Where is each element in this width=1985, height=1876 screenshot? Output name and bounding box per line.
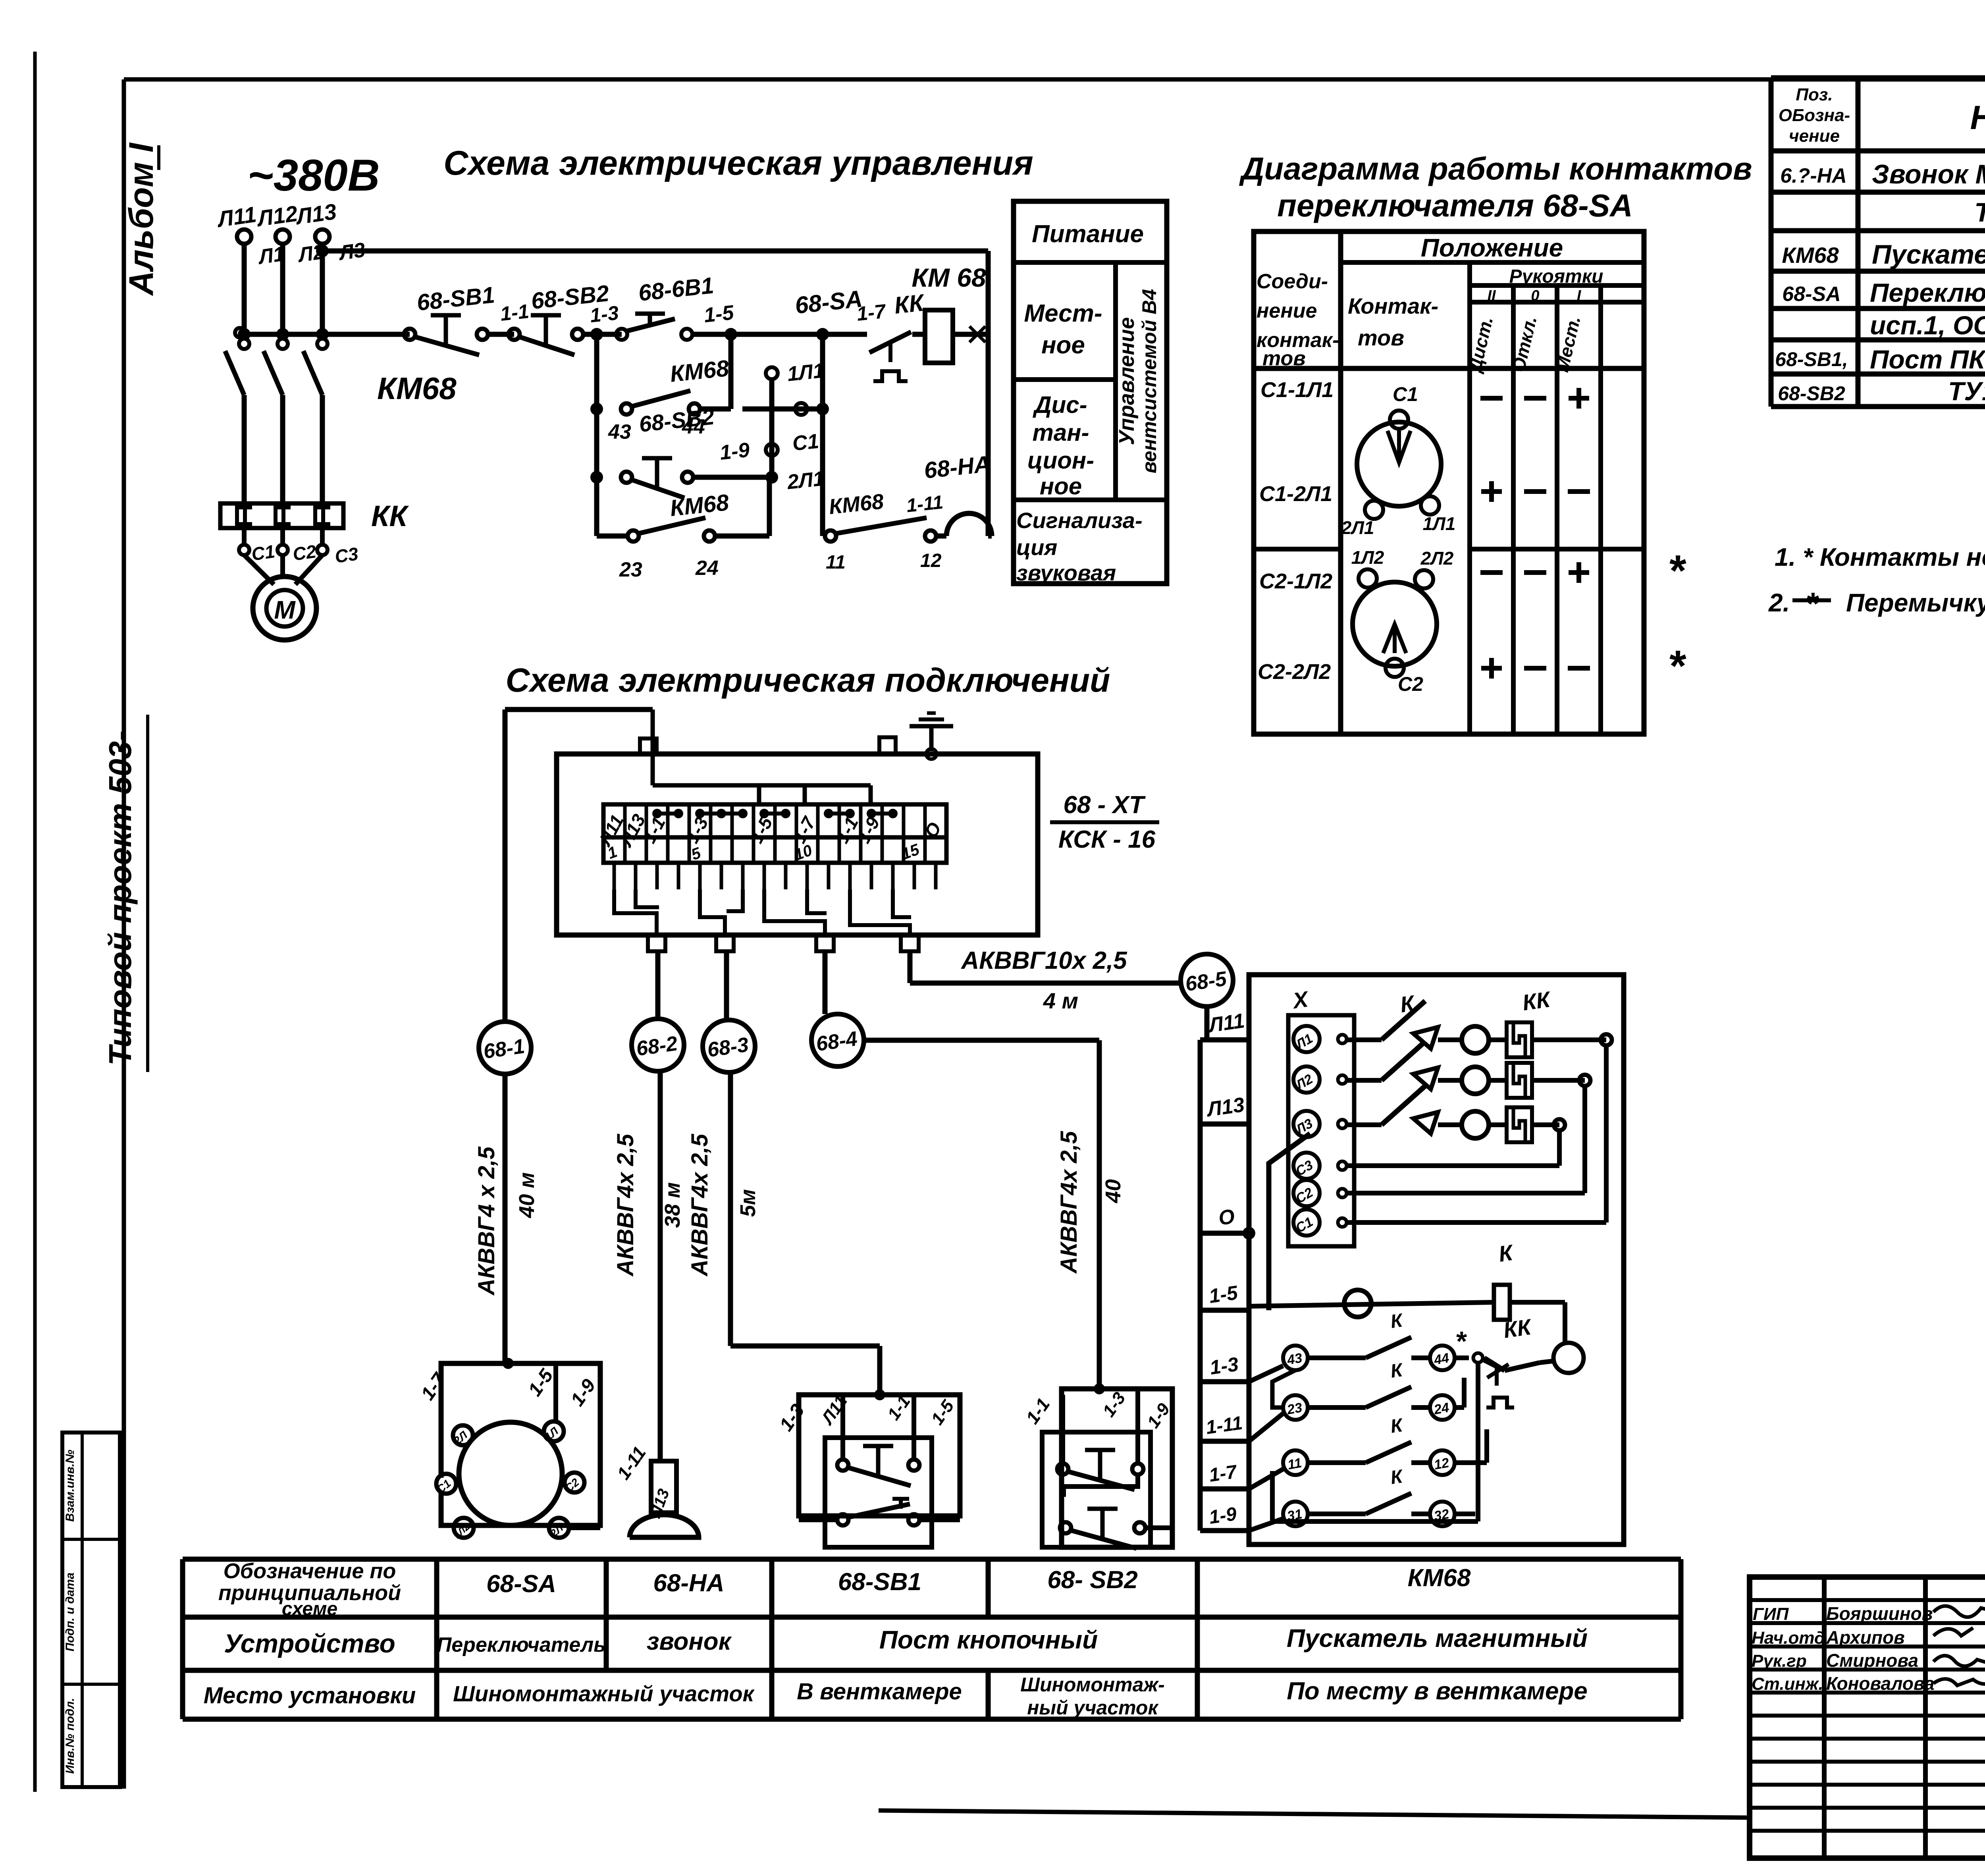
svg-text:АКВВГ10х 2,5: АКВВГ10х 2,5 bbox=[960, 947, 1127, 974]
svg-text:1-11: 1-11 bbox=[1204, 1413, 1244, 1438]
svg-text:12: 12 bbox=[920, 550, 942, 571]
svg-text:68-SB1: 68-SB1 bbox=[416, 282, 496, 316]
svg-text:К: К bbox=[1389, 1310, 1405, 1332]
svg-text:Пост кнопочный: Пост кнопочный bbox=[879, 1625, 1098, 1654]
svg-text:68-НА: 68-НА bbox=[923, 451, 992, 484]
svg-text:11: 11 bbox=[826, 552, 846, 573]
svg-text:1-9: 1-9 bbox=[567, 1375, 600, 1410]
svg-text:Наименование: Наименование bbox=[1970, 99, 1985, 136]
svg-text:5м: 5м bbox=[736, 1189, 760, 1217]
svg-text:2Л1: 2Л1 bbox=[786, 467, 825, 494]
svg-text:Л11: Л11 bbox=[215, 202, 258, 232]
svg-text:43: 43 bbox=[1285, 1350, 1303, 1368]
svg-text:68-4: 68-4 bbox=[815, 1027, 859, 1056]
svg-text:АКВВГ4 х 2,5: АКВВГ4 х 2,5 bbox=[474, 1146, 499, 1296]
svg-text:вентсистемой В4: вентсистемой В4 bbox=[1138, 289, 1160, 473]
svg-text:ТУ16 - 526. 216 - 78: ТУ16 - 526. 216 - 78 bbox=[1948, 376, 1985, 406]
svg-text:1Л1: 1Л1 bbox=[786, 359, 825, 386]
svg-text:1-3: 1-3 bbox=[589, 302, 620, 327]
svg-text:Мест-: Мест- bbox=[1024, 300, 1102, 327]
svg-text:АКВВГ4х 2,5: АКВВГ4х 2,5 bbox=[1056, 1131, 1082, 1274]
svg-text:23: 23 bbox=[1285, 1400, 1303, 1417]
svg-text:Обозначение по: Обозначение по bbox=[224, 1559, 396, 1583]
svg-text:40 м: 40 м bbox=[515, 1172, 539, 1218]
svg-text:1Л1: 1Л1 bbox=[1423, 513, 1456, 534]
svg-text:*: * bbox=[1669, 642, 1686, 690]
svg-text:тов: тов bbox=[1262, 347, 1306, 370]
svg-text:1-5: 1-5 bbox=[524, 1365, 558, 1400]
svg-text:1-9: 1-9 bbox=[1208, 1504, 1238, 1528]
svg-text:Смирнова: Смирнова bbox=[1826, 1650, 1918, 1671]
svg-text:68-3: 68-3 bbox=[706, 1033, 750, 1062]
svg-text:АКВВГ4х 2,5: АКВВГ4х 2,5 bbox=[613, 1134, 638, 1277]
svg-text:КМ68: КМ68 bbox=[1408, 1564, 1471, 1592]
svg-text:С1: С1 bbox=[1393, 383, 1418, 405]
svg-text:В венткамере: В венткамере bbox=[797, 1679, 962, 1704]
svg-text:тан-: тан- bbox=[1033, 419, 1089, 446]
svg-text:1-7: 1-7 bbox=[856, 300, 887, 325]
svg-text:X: X bbox=[1290, 986, 1311, 1014]
svg-text:1-3: 1-3 bbox=[1099, 1389, 1129, 1421]
svg-text:68 - ХТ: 68 - ХТ bbox=[1063, 791, 1146, 819]
svg-text:1-9: 1-9 bbox=[719, 438, 751, 465]
svg-text:КК: КК bbox=[1502, 1314, 1534, 1342]
svg-text:*: * bbox=[1669, 546, 1686, 595]
svg-text:Подп. и дата: Подп. и дата bbox=[64, 1573, 77, 1652]
svg-text:КК: КК bbox=[893, 289, 926, 319]
svg-text:44: 44 bbox=[1432, 1350, 1450, 1368]
svg-text:Типовой проект 503-: Типовой проект 503- bbox=[102, 731, 138, 1066]
svg-text:Место установки: Место установки bbox=[204, 1683, 416, 1708]
svg-text:0: 0 bbox=[1531, 287, 1539, 304]
svg-text:1-3: 1-3 bbox=[776, 1400, 809, 1435]
svg-text:С1-1Л1: С1-1Л1 bbox=[1260, 378, 1334, 402]
svg-text:Переключатель: Переключатель bbox=[437, 1633, 606, 1656]
svg-text:2Л2: 2Л2 bbox=[1420, 548, 1454, 569]
svg-text:Перемычку снять: Перемычку снять bbox=[1846, 588, 1985, 617]
svg-text:Сигнализа-: Сигнализа- bbox=[1016, 508, 1143, 533]
svg-text:звуковая: звуковая bbox=[1016, 560, 1116, 585]
svg-text:I: I bbox=[1577, 287, 1582, 304]
svg-text:АКВВГ4х 2,5: АКВВГ4х 2,5 bbox=[687, 1134, 713, 1277]
svg-text:II: II bbox=[1487, 287, 1496, 304]
svg-text:1-5: 1-5 bbox=[927, 1396, 958, 1429]
svg-text:68-6В1: 68-6В1 bbox=[637, 272, 715, 306]
svg-text:1-1: 1-1 bbox=[1022, 1394, 1054, 1427]
svg-text:ТУ25-05-1045-76: ТУ25-05-1045-76 bbox=[1974, 197, 1985, 228]
svg-text:Дис-: Дис- bbox=[1032, 391, 1087, 418]
svg-text:Питание: Питание bbox=[1032, 220, 1144, 248]
svg-text:1: 1 bbox=[605, 843, 620, 862]
svg-text:С3: С3 bbox=[333, 543, 360, 567]
svg-text:С1: С1 bbox=[250, 541, 276, 565]
svg-text:К: К bbox=[1497, 1240, 1515, 1267]
svg-text:Ст.инж.: Ст.инж. bbox=[1752, 1674, 1823, 1694]
svg-text:Рукоятки: Рукоятки bbox=[1509, 266, 1603, 287]
svg-text:Звонок МЗ-1, ~ 380В,: Звонок МЗ-1, ~ 380В, bbox=[1872, 159, 1985, 189]
svg-text:С2-1Л2: С2-1Л2 bbox=[1259, 569, 1332, 593]
svg-text:Коновалова: Коновалова bbox=[1826, 1673, 1935, 1694]
svg-text:38 м: 38 м bbox=[661, 1182, 684, 1228]
svg-text:68-SA: 68-SA bbox=[1782, 283, 1840, 306]
svg-text:Л13: Л13 bbox=[1204, 1093, 1246, 1121]
svg-text:ОБозна-: ОБозна- bbox=[1779, 106, 1850, 125]
svg-text:Инв.№ подл.: Инв.№ подл. bbox=[64, 1698, 77, 1774]
svg-text:1-5: 1-5 bbox=[746, 813, 777, 846]
svg-text:Рук.гр: Рук.гр bbox=[1752, 1651, 1807, 1671]
svg-text:ГИП: ГИП bbox=[1753, 1604, 1789, 1624]
svg-text:С2-2Л2: С2-2Л2 bbox=[1258, 660, 1331, 684]
svg-text:КСК - 16: КСК - 16 bbox=[1058, 826, 1156, 853]
svg-text:КМ68: КМ68 bbox=[828, 490, 885, 519]
svg-text:12: 12 bbox=[1433, 1455, 1450, 1473]
svg-text:переключателя 68-SA: переключателя 68-SA bbox=[1277, 188, 1633, 223]
svg-text:Переключатель ПП2-10/Н2,У4,: Переключатель ПП2-10/Н2,У4, bbox=[1870, 278, 1985, 307]
svg-text:68- SB2: 68- SB2 bbox=[1047, 1566, 1137, 1594]
svg-text:1-5: 1-5 bbox=[703, 301, 735, 327]
svg-text:Диаграмма работы контактов: Диаграмма работы контактов bbox=[1239, 151, 1752, 186]
svg-text:ция: ция bbox=[1016, 535, 1057, 560]
svg-text:1-9: 1-9 bbox=[1143, 1400, 1174, 1432]
svg-text:Положение: Положение bbox=[1421, 233, 1563, 262]
svg-text:68-SA: 68-SA bbox=[486, 1570, 556, 1598]
svg-text:1-9: 1-9 bbox=[853, 814, 884, 846]
svg-text:1-1: 1-1 bbox=[499, 300, 530, 325]
svg-text:Л11: Л11 bbox=[1206, 1009, 1246, 1037]
svg-text:Пускатель магнитный: Пускатель магнитный bbox=[1287, 1624, 1588, 1652]
svg-text:40: 40 bbox=[1101, 1179, 1125, 1203]
svg-text:Л12: Л12 bbox=[254, 201, 299, 231]
svg-text:нение: нение bbox=[1257, 299, 1317, 322]
svg-text:Взам.инв.№: Взам.инв.№ bbox=[64, 1450, 77, 1521]
svg-text:КМ68: КМ68 bbox=[669, 355, 730, 387]
svg-text:1. * Контакты не используют: 1. * Контакты не используются. bbox=[1775, 543, 1985, 571]
svg-text:1-7: 1-7 bbox=[417, 1369, 451, 1404]
svg-text:КМ68: КМ68 bbox=[1782, 243, 1839, 268]
svg-text:ное: ное bbox=[1040, 473, 1082, 499]
svg-text:КМ68: КМ68 bbox=[377, 371, 457, 406]
svg-text:Пост ПКЕ 712- 2У3, 1/2",: Пост ПКЕ 712- 2У3, 1/2", bbox=[1870, 345, 1985, 374]
svg-text:2Л1: 2Л1 bbox=[1341, 517, 1374, 538]
svg-text:Контак-: Контак- bbox=[1348, 293, 1438, 318]
svg-text:*: * bbox=[1456, 1326, 1467, 1357]
svg-text:1-7: 1-7 bbox=[1208, 1461, 1239, 1486]
svg-text:1Л2: 1Л2 bbox=[1351, 547, 1384, 568]
svg-text:68-SB1,: 68-SB1, bbox=[1775, 348, 1848, 370]
svg-text:Управление: Управление bbox=[1115, 317, 1139, 445]
svg-text:4 м: 4 м bbox=[1043, 988, 1078, 1013]
svg-text:К: К bbox=[1389, 1466, 1405, 1488]
svg-text:Л13: Л13 bbox=[293, 199, 338, 229]
svg-text:Схема электрическая управле: Схема электрическая управления bbox=[443, 144, 1033, 182]
svg-text:*: * bbox=[1806, 586, 1819, 621]
svg-text:68-5: 68-5 bbox=[1184, 967, 1228, 996]
svg-text:С2: С2 bbox=[1398, 673, 1423, 695]
svg-text:исп.1, ОСТ16. 0526. 001-77: исп.1, ОСТ16. 0526. 001-77 bbox=[1870, 310, 1985, 340]
svg-text:С1-2Л1: С1-2Л1 bbox=[1259, 482, 1332, 506]
svg-text:Шиномонтаж-: Шиномонтаж- bbox=[1020, 1674, 1165, 1696]
svg-text:68-SB1: 68-SB1 bbox=[838, 1568, 921, 1596]
svg-text:КК: КК bbox=[1521, 986, 1553, 1015]
svg-text:звонок: звонок bbox=[647, 1628, 732, 1655]
svg-text:1-5: 1-5 bbox=[1208, 1281, 1240, 1307]
svg-text:ный участок: ный участок bbox=[1027, 1697, 1159, 1719]
svg-text:Поз.: Поз. bbox=[1796, 85, 1833, 104]
svg-text:Шиномонтажный участок: Шиномонтажный участок bbox=[453, 1681, 755, 1706]
svg-text:Нач.отд: Нач.отд bbox=[1752, 1628, 1825, 1648]
svg-text:24: 24 bbox=[1432, 1400, 1450, 1417]
svg-text:24: 24 bbox=[695, 557, 719, 580]
svg-text:1-3: 1-3 bbox=[1208, 1353, 1240, 1379]
svg-text:По месту в венткамере: По месту в венткамере bbox=[1287, 1677, 1588, 1705]
svg-text:11: 11 bbox=[1286, 1455, 1303, 1473]
svg-text:К: К bbox=[1389, 1415, 1405, 1437]
svg-text:К: К bbox=[1389, 1359, 1405, 1382]
svg-text:С1: С1 bbox=[791, 430, 820, 455]
svg-text:1-11: 1-11 bbox=[906, 492, 944, 517]
svg-text:М: М bbox=[274, 596, 296, 624]
svg-text:О: О bbox=[1217, 1205, 1236, 1230]
svg-text:2.: 2. bbox=[1768, 588, 1790, 617]
svg-text:Пускатель магнитный: Пускатель магнитный bbox=[1872, 239, 1985, 270]
svg-text:цион-: цион- bbox=[1027, 447, 1094, 474]
svg-text:1-11: 1-11 bbox=[613, 1442, 650, 1483]
svg-text:ное: ное bbox=[1041, 332, 1085, 359]
svg-text:чение: чение bbox=[1789, 126, 1840, 146]
svg-text:тов: тов bbox=[1358, 325, 1404, 350]
svg-text:Устройство: Устройство bbox=[224, 1629, 395, 1658]
svg-text:КК: КК bbox=[371, 499, 409, 532]
svg-text:68-SA: 68-SA bbox=[794, 285, 863, 319]
svg-text:43: 43 bbox=[608, 420, 631, 443]
svg-text:1-7: 1-7 bbox=[789, 813, 820, 846]
svg-text:23: 23 bbox=[619, 558, 642, 581]
svg-text:Архипов: Архипов bbox=[1826, 1627, 1905, 1648]
svg-text:1-3: 1-3 bbox=[682, 814, 712, 846]
svg-text:Соеди-: Соеди- bbox=[1257, 270, 1328, 293]
svg-text:68-НА: 68-НА bbox=[653, 1569, 724, 1597]
svg-text:68-2: 68-2 bbox=[635, 1032, 679, 1060]
svg-text:Схема электрическая подключе: Схема электрическая подключений bbox=[506, 661, 1110, 699]
svg-text:КМ 68: КМ 68 bbox=[912, 263, 986, 292]
svg-text:~380В: ~380В bbox=[247, 150, 380, 200]
svg-text:6.?-НА: 6.?-НА bbox=[1780, 164, 1847, 187]
svg-text:Альбом I: Альбом I bbox=[122, 142, 160, 296]
svg-text:68-1: 68-1 bbox=[482, 1035, 526, 1063]
svg-text:68-SB2: 68-SB2 bbox=[1778, 382, 1845, 405]
svg-text:схеме: схеме bbox=[282, 1598, 337, 1620]
svg-text:Бояршинов: Бояршинов bbox=[1826, 1603, 1933, 1624]
